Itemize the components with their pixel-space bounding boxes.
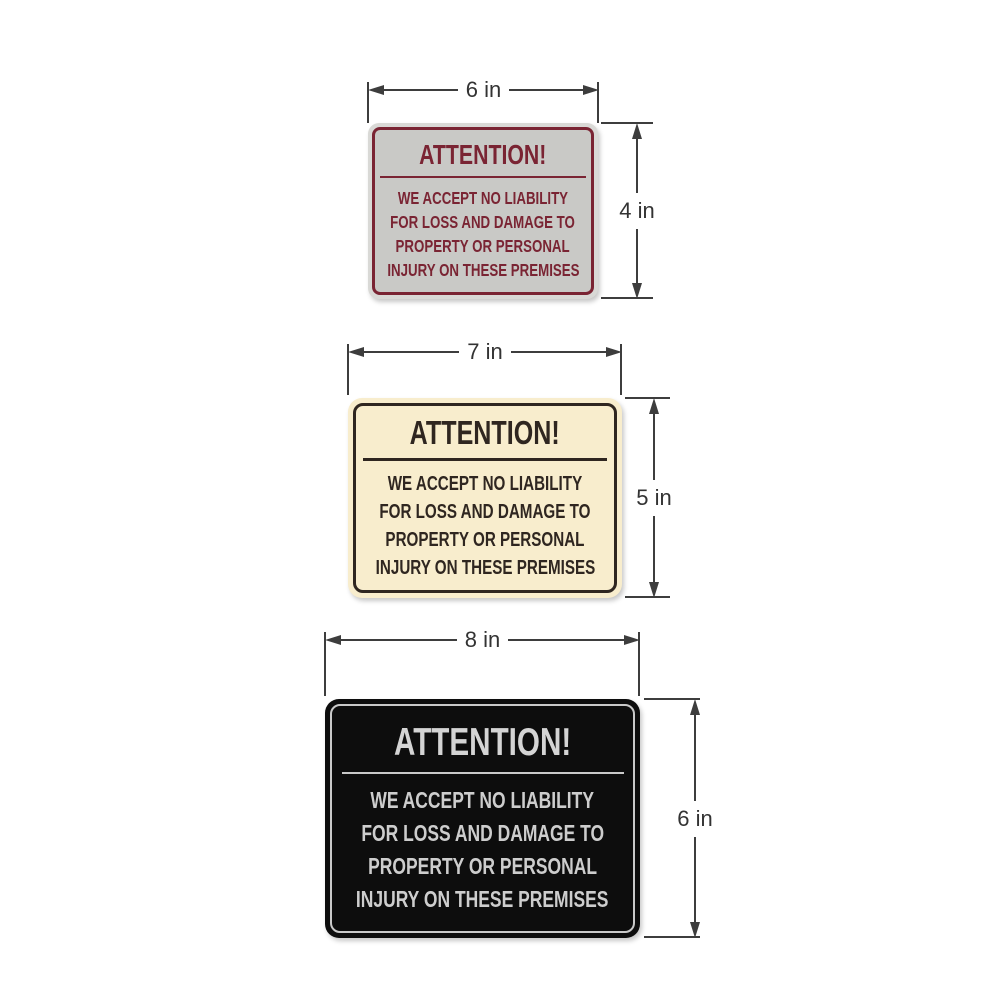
width-dimension: 8 in bbox=[325, 629, 640, 651]
dimension-line-segment bbox=[384, 89, 458, 91]
extension-line bbox=[601, 122, 653, 124]
sign-title: ATTENTION! bbox=[394, 722, 571, 764]
sign-plate-gray: ATTENTION! WE ACCEPT NO LIABILITY FOR LO… bbox=[368, 123, 598, 299]
arrow-up-icon bbox=[690, 699, 700, 715]
sign-title: ATTENTION! bbox=[419, 140, 546, 170]
dimension-line-segment bbox=[508, 639, 624, 641]
dimension-line-segment bbox=[364, 351, 459, 353]
dimension-line-segment bbox=[694, 837, 696, 923]
sign-divider bbox=[342, 772, 624, 774]
sign-face: ATTENTION! WE ACCEPT NO LIABILITY FOR LO… bbox=[330, 704, 635, 933]
width-dimension-label: 7 in bbox=[459, 341, 510, 363]
width-dimension: 6 in bbox=[368, 79, 599, 101]
sign-body-line: WE ACCEPT NO LIABILITY bbox=[371, 784, 595, 817]
height-dimension-label: 6 in bbox=[677, 801, 712, 837]
extension-line bbox=[367, 82, 369, 123]
dimension-line-segment bbox=[636, 139, 638, 193]
width-dimension: 7 in bbox=[348, 341, 622, 363]
sign-divider bbox=[363, 458, 607, 461]
sign-plate-ivory: ATTENTION! WE ACCEPT NO LIABILITY FOR LO… bbox=[348, 398, 622, 598]
extension-line bbox=[644, 698, 700, 700]
sign-body-line: WE ACCEPT NO LIABILITY bbox=[398, 186, 568, 210]
sign-face: ATTENTION! WE ACCEPT NO LIABILITY FOR LO… bbox=[353, 403, 617, 593]
sign-body-line: INJURY ON THESE PREMISES bbox=[375, 554, 595, 582]
arrow-left-icon bbox=[368, 85, 384, 95]
sign-plate-black: ATTENTION! WE ACCEPT NO LIABILITY FOR LO… bbox=[325, 699, 640, 938]
dimension-line-segment bbox=[636, 229, 638, 283]
height-dimension-label: 5 in bbox=[636, 480, 671, 516]
height-dimension: 5 in bbox=[643, 398, 665, 598]
dimension-line-segment bbox=[694, 715, 696, 801]
sign-body-line: INJURY ON THESE PREMISES bbox=[356, 883, 609, 916]
extension-line bbox=[347, 344, 349, 395]
dimension-line-segment bbox=[653, 414, 655, 480]
extension-line bbox=[620, 344, 622, 395]
dimension-line-segment bbox=[511, 351, 606, 353]
sign-body-line: FOR LOSS AND DAMAGE TO bbox=[379, 498, 590, 526]
product-dimension-diagram: 6 in 4 in ATTENTION! WE ACCEPT NO LIABIL… bbox=[0, 0, 1000, 1000]
height-dimension-label: 4 in bbox=[619, 193, 654, 229]
sign-divider bbox=[380, 176, 586, 178]
sign-body-line: PROPERTY OR PERSONAL bbox=[368, 850, 597, 883]
arrow-left-icon bbox=[348, 347, 364, 357]
sign-title: ATTENTION! bbox=[410, 415, 560, 451]
dimension-line-segment bbox=[341, 639, 457, 641]
width-dimension-label: 8 in bbox=[457, 629, 508, 651]
sign-face: ATTENTION! WE ACCEPT NO LIABILITY FOR LO… bbox=[372, 127, 594, 295]
extension-line bbox=[638, 632, 640, 696]
arrow-left-icon bbox=[325, 635, 341, 645]
sign-body-line: FOR LOSS AND DAMAGE TO bbox=[391, 210, 576, 234]
extension-line bbox=[644, 936, 700, 938]
dimension-line-segment bbox=[509, 89, 583, 91]
extension-line bbox=[597, 82, 599, 123]
sign-body-line: INJURY ON THESE PREMISES bbox=[387, 258, 579, 282]
sign-body-line: PROPERTY OR PERSONAL bbox=[396, 234, 570, 258]
extension-line bbox=[625, 397, 670, 399]
sign-body-line: FOR LOSS AND DAMAGE TO bbox=[361, 817, 604, 850]
width-dimension-label: 6 in bbox=[458, 79, 509, 101]
sign-body-line: WE ACCEPT NO LIABILITY bbox=[388, 470, 583, 498]
height-dimension: 6 in bbox=[684, 699, 706, 938]
dimension-line-segment bbox=[653, 516, 655, 582]
arrow-up-icon bbox=[632, 123, 642, 139]
extension-line bbox=[601, 297, 653, 299]
arrow-up-icon bbox=[649, 398, 659, 414]
extension-line bbox=[324, 632, 326, 696]
height-dimension: 4 in bbox=[626, 123, 648, 299]
extension-line bbox=[625, 596, 670, 598]
sign-body-line: PROPERTY OR PERSONAL bbox=[385, 526, 584, 554]
